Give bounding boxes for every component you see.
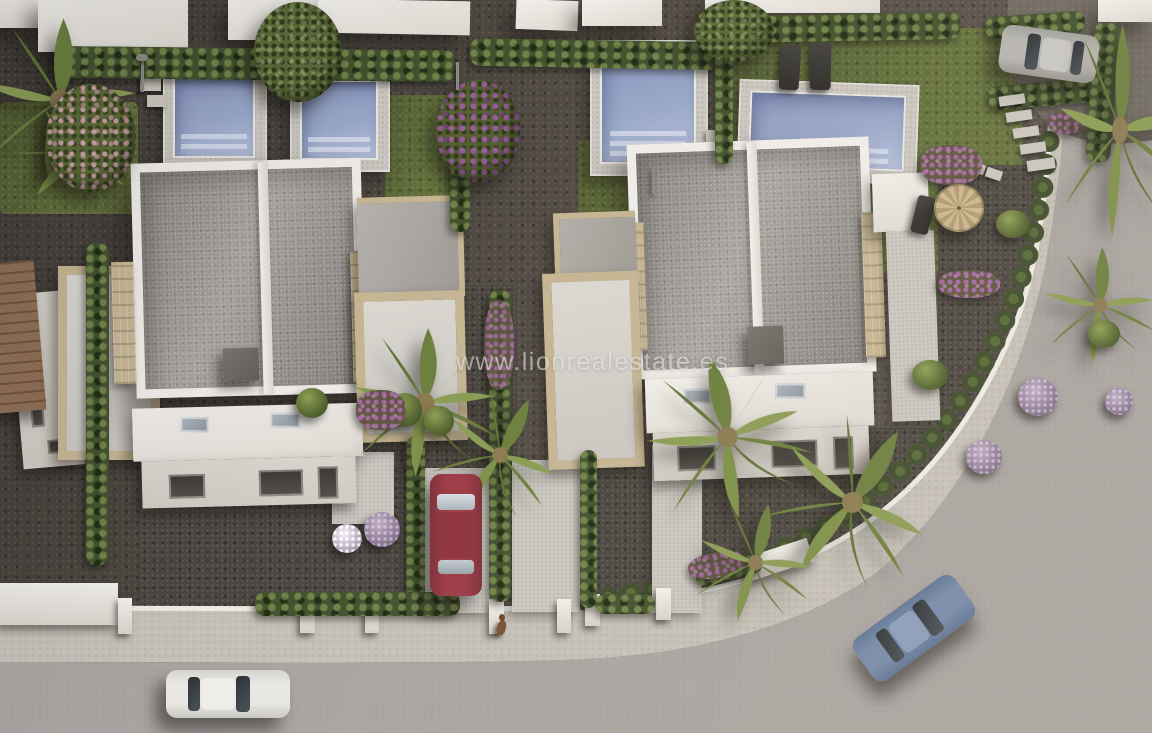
villa-left-stone-column-left <box>111 262 136 385</box>
watermark-text: www.lionrealestate.es <box>456 348 729 377</box>
villa-left-window <box>259 469 304 496</box>
green-tree-top <box>254 2 342 102</box>
bush <box>996 210 1030 238</box>
lamp-post <box>652 168 655 194</box>
building-top <box>582 0 662 26</box>
hedge-row-front-left <box>255 592 460 616</box>
building-top <box>318 0 471 35</box>
villa-right-stone-column-right <box>861 212 886 358</box>
car-white <box>166 670 290 718</box>
villa-left-terrace <box>132 403 363 462</box>
bougainvillea-tree <box>436 80 520 182</box>
purple-flower-patch <box>920 145 982 185</box>
car-white-roof <box>202 678 235 710</box>
purple-flower-patch <box>356 390 406 430</box>
gate-post <box>656 588 671 620</box>
lamp-post <box>456 62 459 90</box>
villa-left-window <box>169 474 206 499</box>
villa-left-chimney <box>222 347 259 381</box>
hedge-row-top2 <box>470 38 720 70</box>
bush <box>912 360 948 390</box>
pink-flowering-tree <box>46 84 136 192</box>
shower-head <box>136 54 148 61</box>
lavender-ball-bush <box>966 440 1002 474</box>
palm-right-mid <box>1035 245 1152 365</box>
bush <box>424 406 454 436</box>
villa-left-facade <box>141 456 356 509</box>
straw-parasol <box>934 184 984 232</box>
hedge-col-pool3 <box>715 46 733 164</box>
building-top <box>1098 0 1152 22</box>
purple-flower-patch <box>938 270 1000 298</box>
hedge-col-driveway-right2 <box>580 450 597 608</box>
palm-right-top <box>1055 20 1152 240</box>
lavender-ball-bush <box>364 512 400 547</box>
villa-right-side-path <box>886 230 941 422</box>
bush <box>1088 320 1120 348</box>
gate-post <box>557 599 571 633</box>
car-white-rear-window <box>188 677 200 711</box>
building-top <box>515 0 578 31</box>
car-red-rear-window <box>438 560 474 574</box>
lavender-ball-bush <box>1105 388 1133 415</box>
green-tree-pool4 <box>694 0 774 62</box>
aerial-render-scene: www.lionrealestate.es <box>0 0 1152 733</box>
gate-post <box>118 598 132 634</box>
pool1-water <box>173 76 255 158</box>
hedge-col-left-boundary <box>86 243 109 565</box>
car-red-windshield <box>437 494 475 510</box>
car-white-windshield <box>236 676 250 712</box>
villa-left-annex-roof <box>357 195 466 299</box>
palm-sidewalk <box>678 489 833 636</box>
dog-head <box>499 614 505 621</box>
villa-left-skylight <box>270 413 300 428</box>
car-red-roof <box>439 512 473 558</box>
white-ball-bush <box>332 524 362 553</box>
villa-left-door <box>318 466 339 499</box>
sun-lounger <box>778 43 801 90</box>
bush <box>296 388 328 418</box>
stepping-stone <box>147 95 166 107</box>
car-red <box>430 474 482 596</box>
sun-lounger <box>810 42 832 90</box>
villa-left-skylight <box>180 417 208 432</box>
boundary-wall-left <box>0 583 118 625</box>
shower-pole <box>141 58 144 92</box>
lavender-ball-bush <box>1018 378 1058 416</box>
hedge-row-front-mid <box>595 594 655 614</box>
